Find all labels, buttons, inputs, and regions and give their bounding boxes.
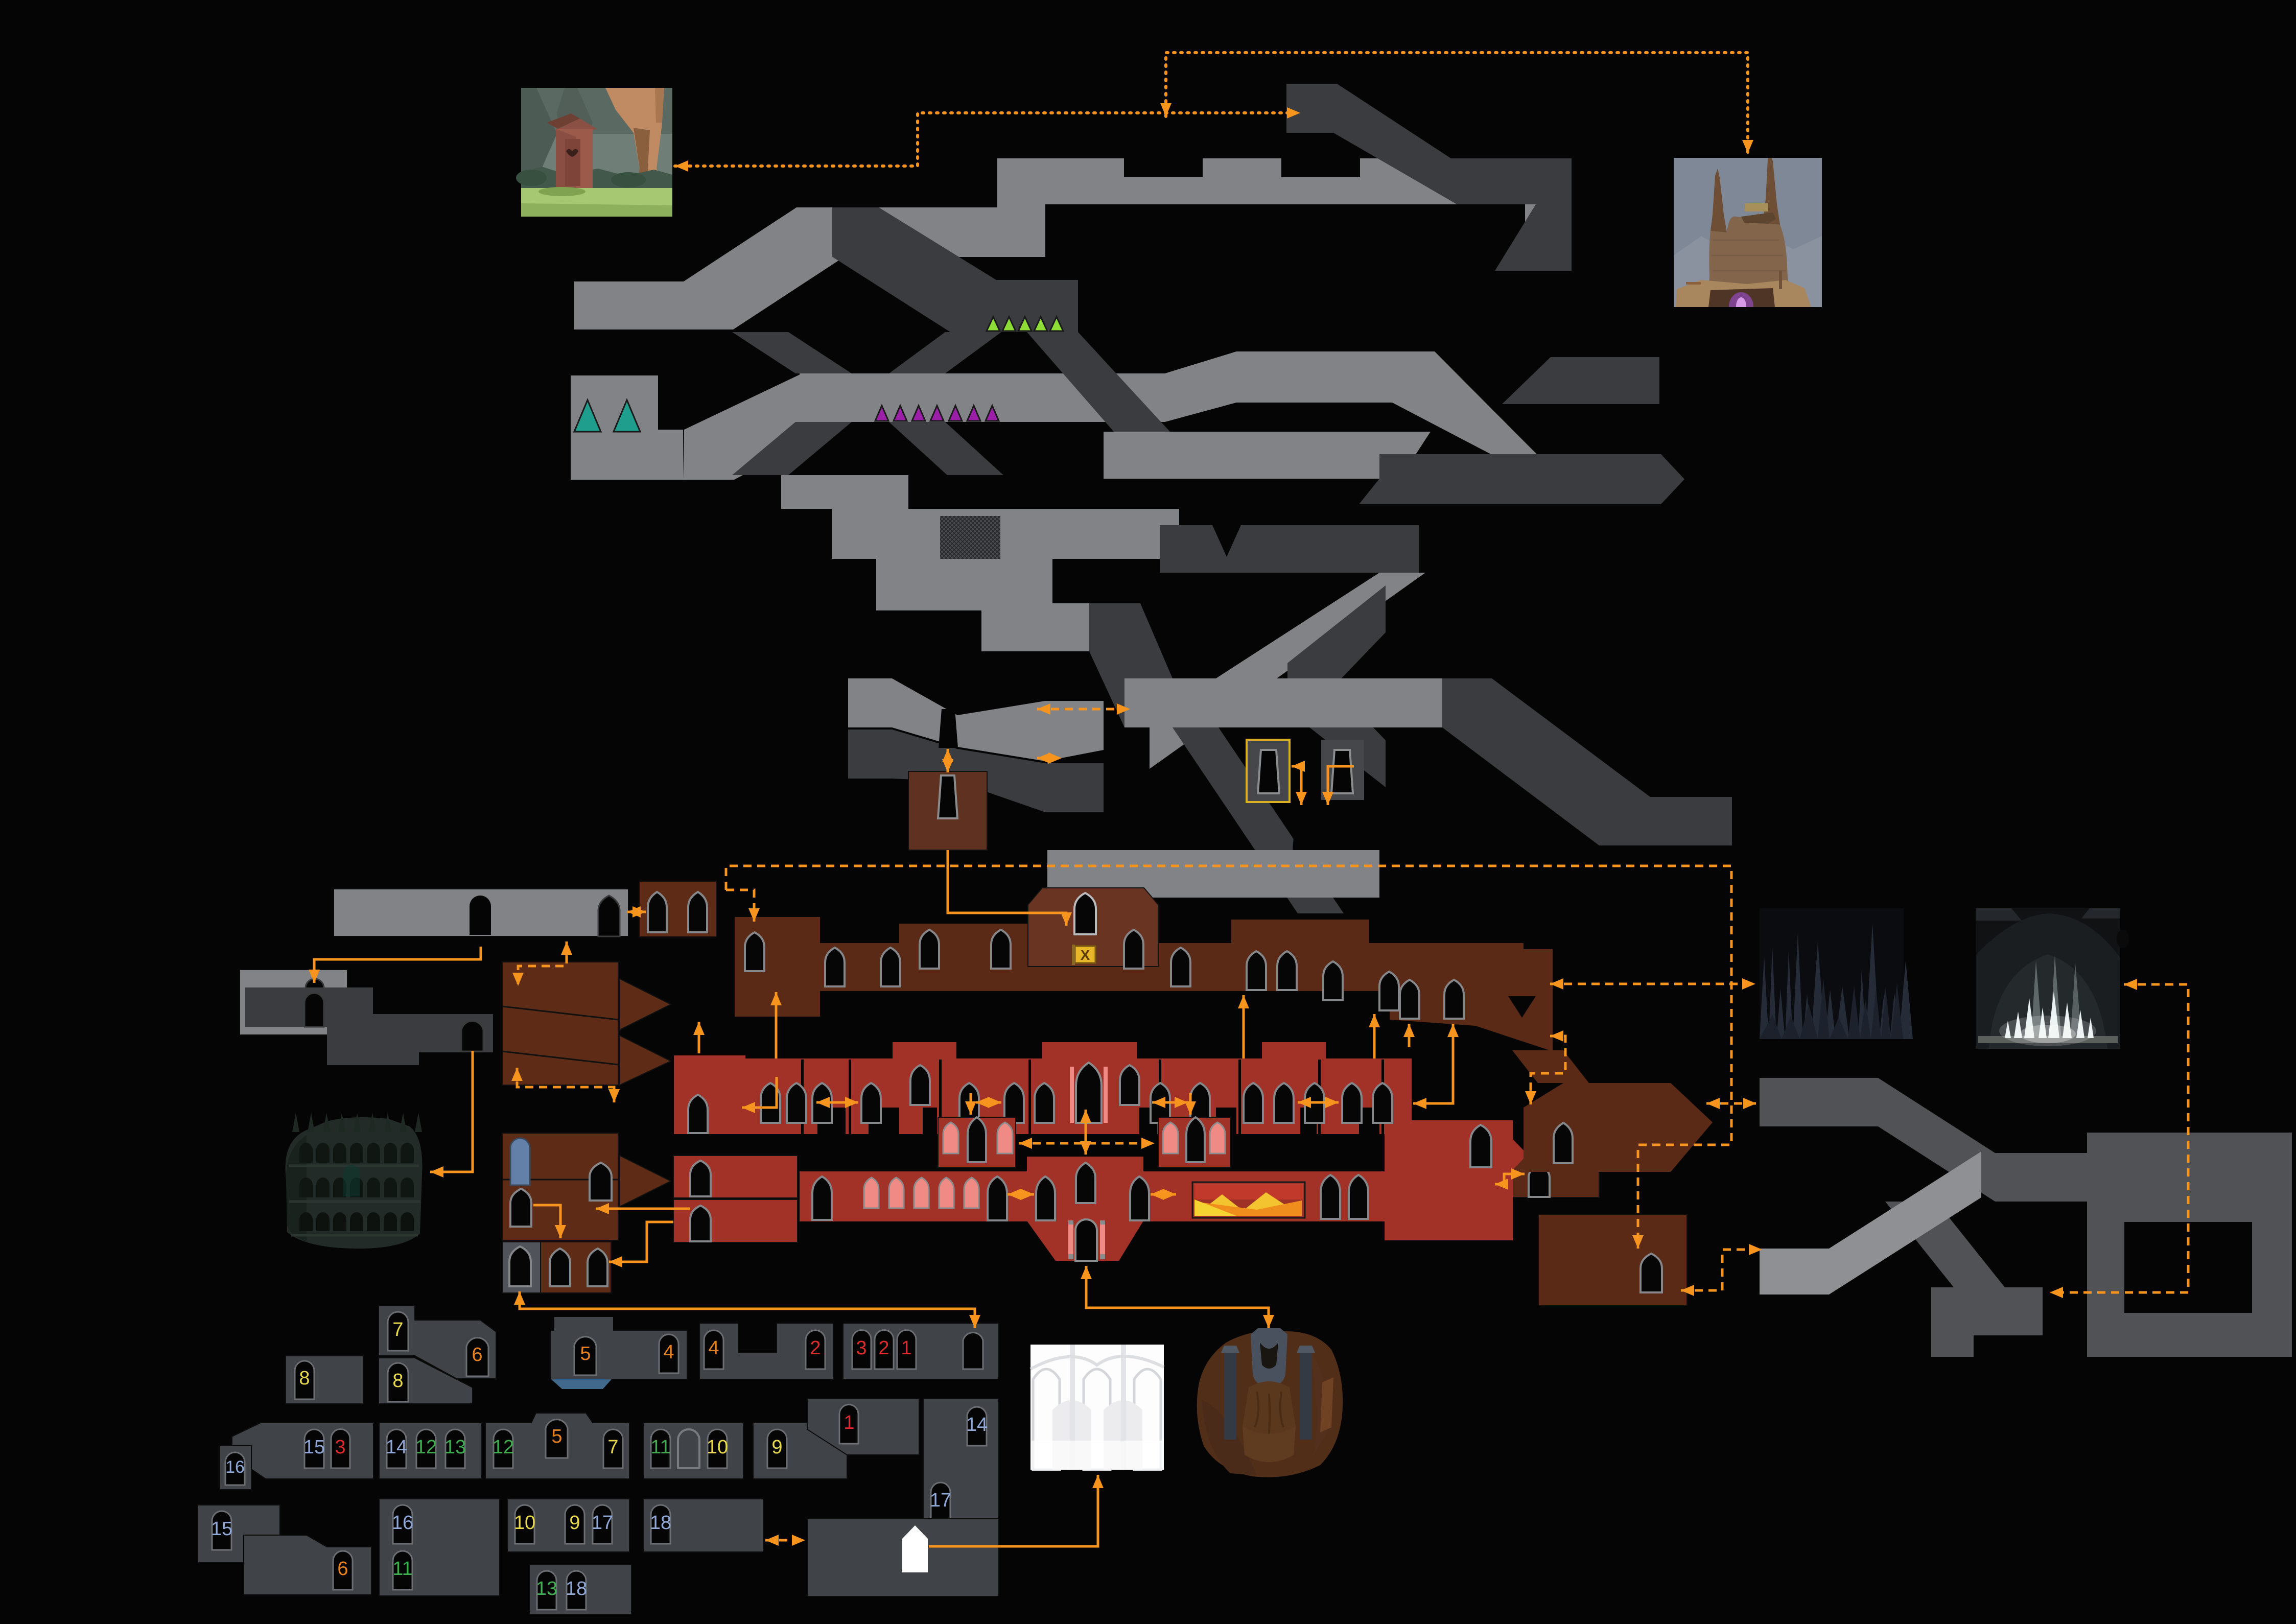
svg-text:8: 8 xyxy=(299,1368,310,1389)
svg-text:16: 16 xyxy=(392,1512,413,1534)
svg-text:9: 9 xyxy=(569,1512,580,1534)
svg-text:2: 2 xyxy=(878,1337,889,1359)
svg-text:8: 8 xyxy=(392,1370,403,1392)
svg-text:18: 18 xyxy=(566,1578,587,1599)
svg-text:10: 10 xyxy=(514,1512,535,1534)
svg-text:12: 12 xyxy=(493,1437,514,1458)
svg-text:6: 6 xyxy=(337,1558,348,1580)
svg-text:6: 6 xyxy=(472,1344,482,1366)
svg-text:7: 7 xyxy=(392,1319,403,1340)
svg-text:17: 17 xyxy=(592,1512,613,1534)
svg-text:4: 4 xyxy=(663,1341,674,1363)
svg-text:15: 15 xyxy=(303,1437,325,1458)
svg-text:9: 9 xyxy=(771,1437,782,1458)
svg-text:1: 1 xyxy=(901,1337,911,1359)
svg-text:15: 15 xyxy=(211,1518,232,1540)
svg-text:5: 5 xyxy=(580,1343,591,1364)
svg-text:17: 17 xyxy=(930,1490,951,1511)
svg-text:10: 10 xyxy=(707,1437,728,1458)
svg-text:14: 14 xyxy=(966,1414,988,1435)
svg-text:X: X xyxy=(1081,947,1090,963)
svg-text:5: 5 xyxy=(551,1426,562,1447)
svg-text:11: 11 xyxy=(392,1558,412,1580)
svg-text:13: 13 xyxy=(444,1437,466,1458)
svg-text:3: 3 xyxy=(856,1337,866,1359)
svg-text:1: 1 xyxy=(844,1412,854,1433)
svg-text:11: 11 xyxy=(650,1437,670,1458)
svg-text:13: 13 xyxy=(536,1578,557,1599)
svg-text:18: 18 xyxy=(650,1512,671,1534)
svg-text:4: 4 xyxy=(708,1337,719,1359)
svg-text:12: 12 xyxy=(415,1437,437,1458)
svg-text:7: 7 xyxy=(607,1437,618,1458)
svg-text:2: 2 xyxy=(810,1337,821,1359)
svg-text:16: 16 xyxy=(225,1457,245,1477)
svg-text:14: 14 xyxy=(386,1437,407,1458)
svg-text:3: 3 xyxy=(335,1437,345,1458)
